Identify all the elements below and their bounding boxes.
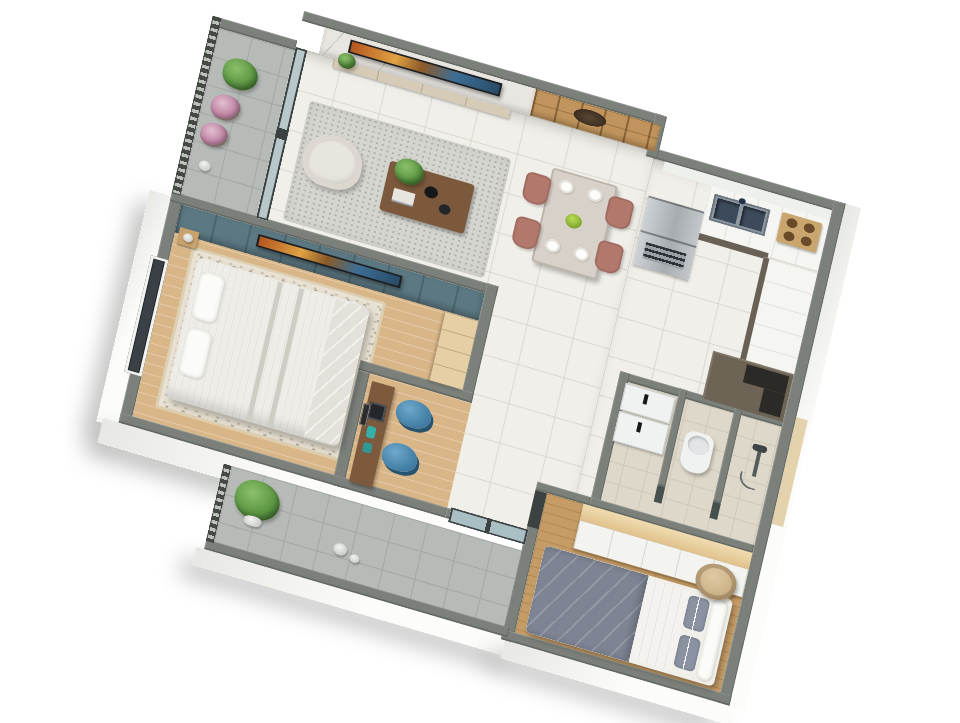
apartment-scene xyxy=(81,0,884,723)
floorplan-canvas xyxy=(0,0,960,723)
